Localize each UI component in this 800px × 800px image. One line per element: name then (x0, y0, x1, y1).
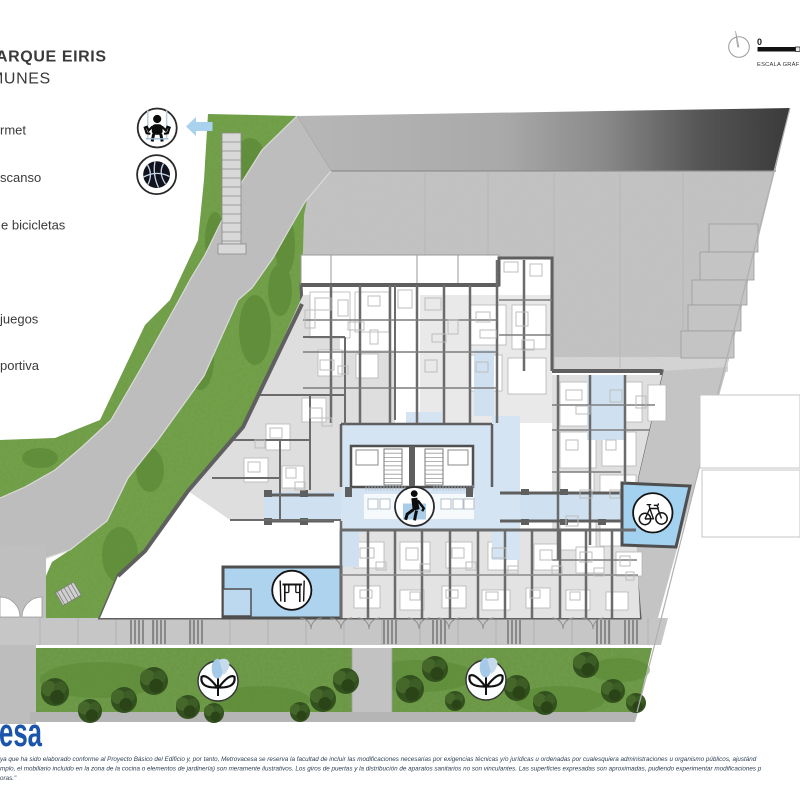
svg-text:juegos: juegos (0, 312, 39, 327)
svg-text:ya que ha sido elaborado confo: ya que ha sido elaborado conforme al Pro… (0, 756, 757, 763)
svg-text:rmet: rmet (0, 123, 26, 138)
svg-text:ARQUE EIRIS: ARQUE EIRIS (0, 49, 107, 66)
svg-text:0: 0 (757, 37, 762, 47)
svg-text:mplo, el mobiliario incluido e: mplo, el mobiliario incluido en la zona … (0, 766, 762, 773)
svg-text:portiva: portiva (0, 358, 40, 373)
svg-text:MUNES: MUNES (0, 71, 51, 88)
svg-text:esa: esa (0, 711, 42, 755)
svg-text:scanso: scanso (0, 170, 41, 185)
svg-text:e bicicletas: e bicicletas (1, 218, 66, 233)
svg-text:ESCALA GRÁFI: ESCALA GRÁFI (757, 61, 800, 68)
svg-text:oras.": oras." (0, 775, 17, 782)
